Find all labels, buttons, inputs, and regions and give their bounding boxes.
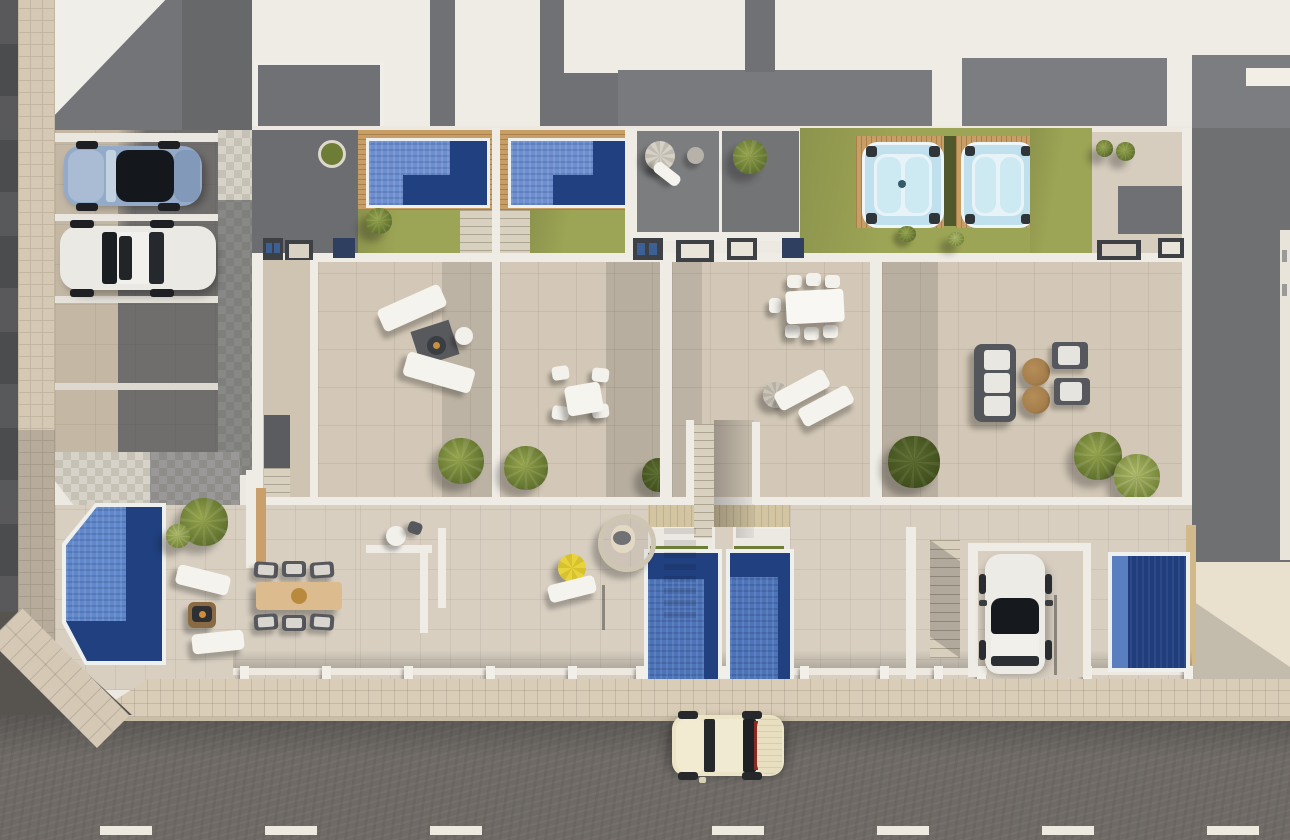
pergola-wall [420,545,428,633]
pool-deep-end [593,141,625,205]
garden-dining-table [256,582,342,610]
car-cabin [116,150,174,202]
rooftop-pool-2 [508,138,628,208]
chair-cushion [286,618,302,628]
lane-dash [100,826,152,835]
right-neighbor-roof [1192,128,1290,562]
hot-tub-center [898,180,906,188]
patio-wall [438,528,446,608]
parking-line [55,383,218,390]
garden-chair [309,561,334,579]
chair-cushion [1058,346,1080,365]
fence-post [322,666,331,680]
lane-dash [265,826,317,835]
car-wheel [158,203,180,211]
hot-tub-pad [866,146,877,157]
garden-bush [166,524,190,548]
sink [649,243,657,255]
round-planter [318,140,346,168]
palm-plant [888,436,940,488]
car-windshield [991,598,1039,634]
car-wheel [1045,574,1052,594]
pool-step-notch [553,175,595,205]
small-palm [1096,140,1113,157]
car-rear-deck [757,717,782,774]
skylight-patio-1 [258,65,380,128]
lane-dash [430,826,482,835]
pool-deep-end [778,553,790,682]
palm-plant [438,438,484,484]
right-party-wall [1182,128,1192,562]
bbq-top [681,244,709,258]
pool-deep-end [66,621,162,661]
dining-chair [591,367,609,383]
dining-chair [823,325,838,338]
parked-car-white [54,216,222,300]
stair-shadow [930,540,960,658]
dining-chair [804,327,819,340]
car-hood [68,150,104,202]
car-mirror [979,600,987,606]
hot-tub-seat [975,157,996,213]
pool-deck-2 [500,130,630,210]
sofa-cushion [984,396,1010,416]
right-roof-edge [1280,230,1290,560]
bbq-counter [263,238,283,260]
entry-walkway [218,130,252,475]
aerial-render-scene [0,0,1290,840]
driveway-wall [1083,543,1091,677]
roof-band-right [962,58,1167,133]
flame [199,611,206,618]
chair-throw [613,531,631,545]
hanging-egg-chair [598,514,656,572]
garden-chair [309,613,334,631]
flame [433,342,440,349]
bbq-counter [633,238,663,260]
staircase-unit3 [930,540,960,658]
flowering-plant [898,226,916,242]
passage-wall [252,260,263,505]
wood-post-wall [256,488,266,568]
garden-chair [253,561,278,579]
hot-tub-1 [862,142,944,228]
driveway-car [972,548,1058,682]
pool-step-notch [403,175,450,205]
bbq-counter [676,240,714,262]
pool-deep-end [704,553,718,682]
terrace-top-wall [252,253,1182,262]
stair-wall [752,422,760,504]
pouf [1022,358,1050,386]
hot-tub-pad [965,146,975,156]
car-hood [676,719,706,772]
sofa-cushion [984,373,1010,393]
palm-plant [504,446,548,490]
chair-cushion [314,616,331,627]
bbq-counter [285,240,313,262]
bbq-top [289,244,309,258]
bbq-counter [782,238,804,258]
garage-roof [55,0,252,135]
ground-pool-unit4 [1108,552,1190,672]
hot-tub-2 [961,142,1035,228]
palm-plant [1114,454,1160,500]
roof-gap-2 [540,0,564,133]
roof-window-slit [1282,284,1287,296]
lane-dash [1042,826,1094,835]
car-rear-glass [149,232,164,284]
car-wheel [76,141,98,149]
sink [274,243,280,253]
hot-tub-pad [929,146,940,157]
car-sunroof [119,236,132,280]
bbq-top [731,242,753,256]
lane-dash [1207,826,1259,835]
pool-deep-end [450,141,487,205]
car-wheel [150,289,174,297]
car-wheel [742,711,762,719]
car-roof [715,719,743,772]
roof-vent [1246,68,1290,86]
car-mirror [699,709,706,715]
fence-post [404,666,413,680]
bistro-table [386,526,406,546]
car-wheel [76,203,98,211]
car-wheel [158,141,180,149]
street-car [662,704,792,786]
rooftop-pool-1 [366,138,490,208]
bbq-counter [1158,238,1184,258]
dining-table [564,381,605,417]
car-rear-glass [991,656,1039,666]
hot-tub-seat [1000,157,1021,213]
asphalt-edge-strip [0,0,18,715]
chair-cushion [258,616,275,627]
chair-cushion [314,564,331,575]
car-roof [991,634,1039,656]
car-wheel [70,220,94,228]
bbq-counter [1097,240,1141,260]
fence-post [934,666,943,680]
stair-wall [686,420,694,504]
roof-shadow [182,0,252,135]
terrace-divider-wall [870,262,882,502]
street [0,700,1290,840]
car-mirror [699,777,706,783]
dining-chair [769,298,781,313]
side-patch-dark [1118,186,1182,234]
roof-band-mid [618,70,932,133]
entry-pavers [55,452,240,505]
pool-water [648,553,718,682]
fence-post [568,666,577,680]
fence-post [800,666,809,680]
dining-chair [785,325,800,338]
shrub [366,208,392,234]
car-wheel [1045,640,1052,660]
ground-pool-unit2 [644,549,722,686]
terrace-divider-wall [660,262,672,502]
fence-post [880,666,889,680]
chair-cushion [258,564,275,575]
car-wheel [678,772,698,780]
long-dining-table [785,289,845,325]
armchair [1054,378,1090,405]
ground-pool-unit1 [62,503,166,665]
car-wheel [979,574,986,594]
roof-band-far-right [1192,55,1290,133]
pool-shallow-edge [1112,556,1128,668]
sink [266,243,272,253]
roof-window-slit [1282,250,1287,262]
pool-water [730,553,790,682]
fence-post [486,666,495,680]
small-palm [1116,142,1135,161]
hot-tub-seat [905,157,929,213]
dining-chair [825,275,840,288]
car-wheel [742,772,762,780]
garden-chair [282,615,306,631]
outdoor-sofa [974,344,1016,422]
side-table [455,327,473,345]
roof-light-wedge [55,0,252,135]
car-wheel [979,640,986,660]
terrace-divider-wall [492,262,500,502]
car-windshield [704,719,715,772]
garden-wall [246,470,256,568]
bbq-top [1162,242,1180,254]
parked-car-blue [58,138,208,212]
diagonal-shadow [1192,562,1290,690]
bbq-top [1102,244,1136,256]
sink [637,243,645,255]
pouf [1022,386,1050,414]
deck-divider [719,131,722,232]
side-table [687,147,704,164]
palm-plant [733,140,767,174]
chair-cushion [286,564,302,574]
wicker-fire-table [188,602,216,628]
party-wall [492,128,500,262]
garden-chair [253,613,278,631]
sofa-cushion [984,350,1010,370]
hot-tub-pad [929,213,940,224]
bbq-counter [727,238,757,260]
bbq-counter [333,238,355,258]
hot-tub-pad [965,214,975,224]
garden-chair [282,561,306,577]
table-centerpiece [291,588,307,604]
neighbor-lot [1192,562,1290,690]
pool-deck-1 [358,130,492,210]
patio-wall [906,527,916,687]
lane-dash [877,826,929,835]
fire-bowl [427,336,446,355]
car-windshield [106,150,116,202]
car-wheel [678,711,698,719]
roof-gap-1 [430,0,455,133]
lane-dash [712,826,764,835]
dining-chair [806,273,821,286]
small-plant [948,232,964,246]
dining-chair [551,365,570,381]
car-windshield [102,232,117,284]
fence-post [240,666,249,680]
ground-pool-unit3 [726,549,794,686]
left-sidewalk-strip [18,0,55,645]
car-mirror [1045,600,1053,606]
car-wheel [150,220,174,228]
central-staircase [694,424,714,538]
dining-chair [787,275,802,288]
stair-void [264,415,290,470]
passage-wall [310,260,318,505]
pool-water [66,507,162,661]
hot-tub-pad [866,213,877,224]
car-wheel [70,289,94,297]
roof-gap-3 [745,0,775,72]
armchair [1052,342,1088,369]
pool-water [1112,556,1186,668]
car-rear [174,150,200,202]
chair-cushion [1060,382,1082,401]
